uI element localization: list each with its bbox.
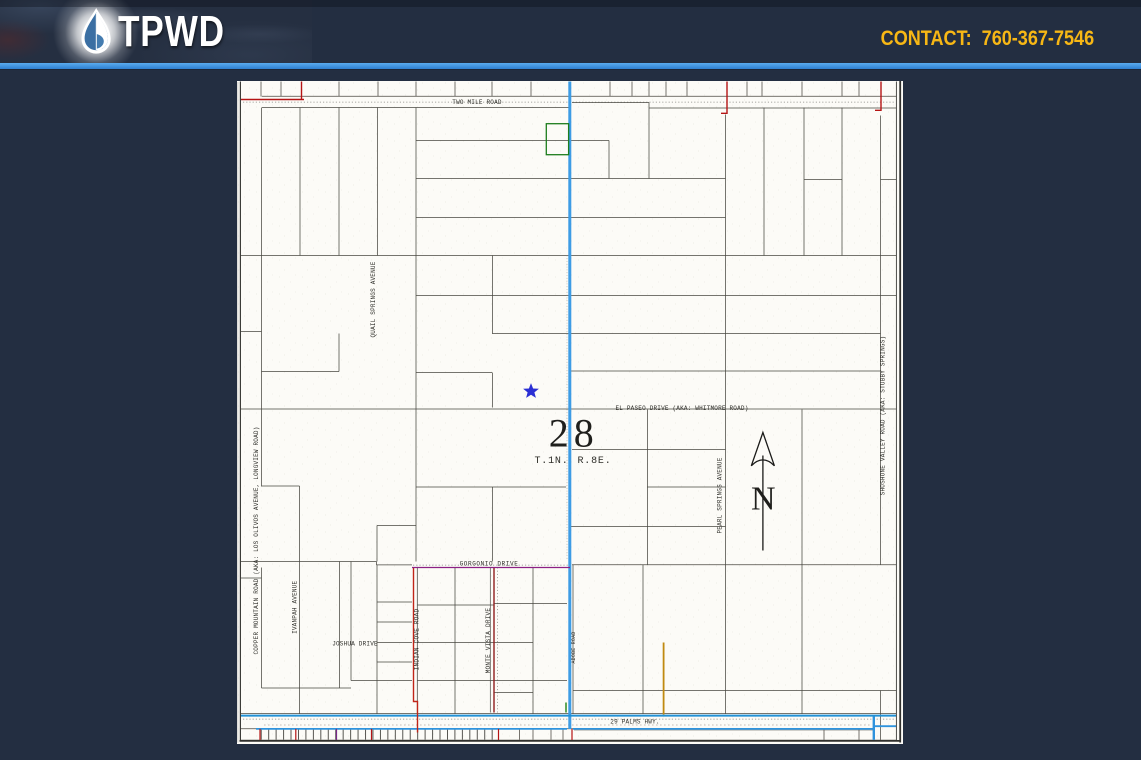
svg-text:JOSHUA DRIVE: JOSHUA DRIVE: [332, 640, 378, 647]
svg-text:MONTE VISTA DRIVE: MONTE VISTA DRIVE: [485, 607, 492, 673]
svg-text:R.8E.: R.8E.: [578, 455, 612, 466]
svg-text:ADOBE ROAD: ADOBE ROAD: [571, 631, 577, 663]
svg-text:PEARL SPRINGS AVENUE: PEARL SPRINGS AVENUE: [717, 457, 724, 533]
svg-text:INDIAN COVE ROAD: INDIAN COVE ROAD: [414, 608, 421, 670]
svg-text:29 PALMS HWY.: 29 PALMS HWY.: [610, 718, 659, 725]
svg-text:T.1N.: T.1N.: [535, 455, 569, 466]
svg-text:GORGONIO DRIVE: GORGONIO DRIVE: [460, 560, 519, 567]
svg-text:N: N: [751, 480, 776, 517]
svg-text:SHOSHONE VALLEY ROAD (AKA: STU: SHOSHONE VALLEY ROAD (AKA: STUBBY SPRING…: [880, 335, 887, 495]
svg-text:IVANPAH AVENUE: IVANPAH AVENUE: [292, 580, 299, 633]
svg-text:QUAIL SPRINGS AVENUE: QUAIL SPRINGS AVENUE: [370, 261, 377, 337]
svg-text:EL PASEO DRIVE (AKA: WHITMORE: EL PASEO DRIVE (AKA: WHITMORE ROAD): [615, 405, 748, 412]
svg-text:COPPER MOUNTAIN ROAD (AKA: LOS: COPPER MOUNTAIN ROAD (AKA: LOS OLIVOS AV…: [253, 426, 260, 654]
svg-text:TWO MILE ROAD: TWO MILE ROAD: [452, 99, 502, 106]
svg-text:28: 28: [549, 410, 599, 455]
